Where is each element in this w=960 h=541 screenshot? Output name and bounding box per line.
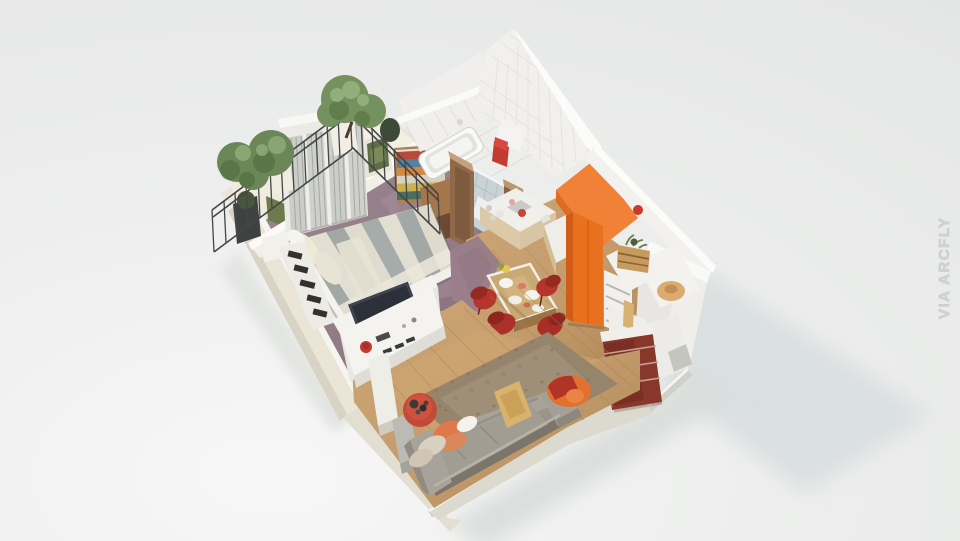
svg-text:VIA ARCFLY: VIA ARCFLY — [936, 216, 953, 319]
